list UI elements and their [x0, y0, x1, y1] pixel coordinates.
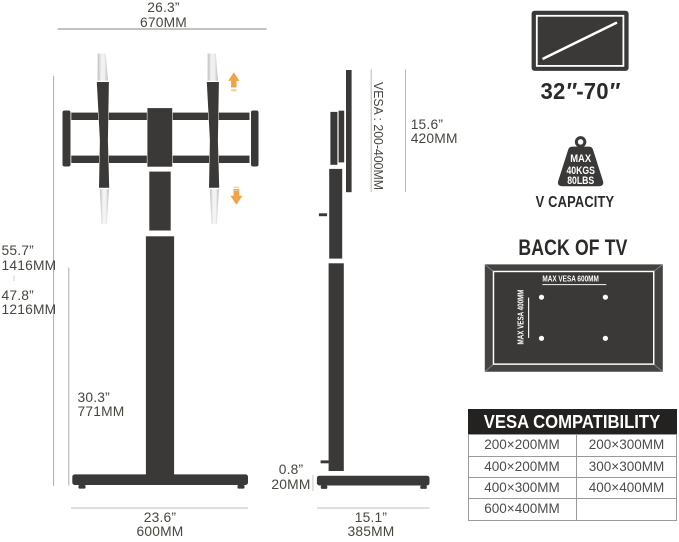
svg-text:MAX VESA 600MM: MAX VESA 600MM: [542, 273, 599, 283]
svg-text:80LBS: 80LBS: [567, 175, 594, 187]
svg-text:VESA : 200-400MM: VESA : 200-400MM: [371, 82, 386, 190]
svg-text:MAX VESA 400MM: MAX VESA 400MM: [515, 290, 525, 345]
svg-text:MAX: MAX: [570, 153, 592, 165]
